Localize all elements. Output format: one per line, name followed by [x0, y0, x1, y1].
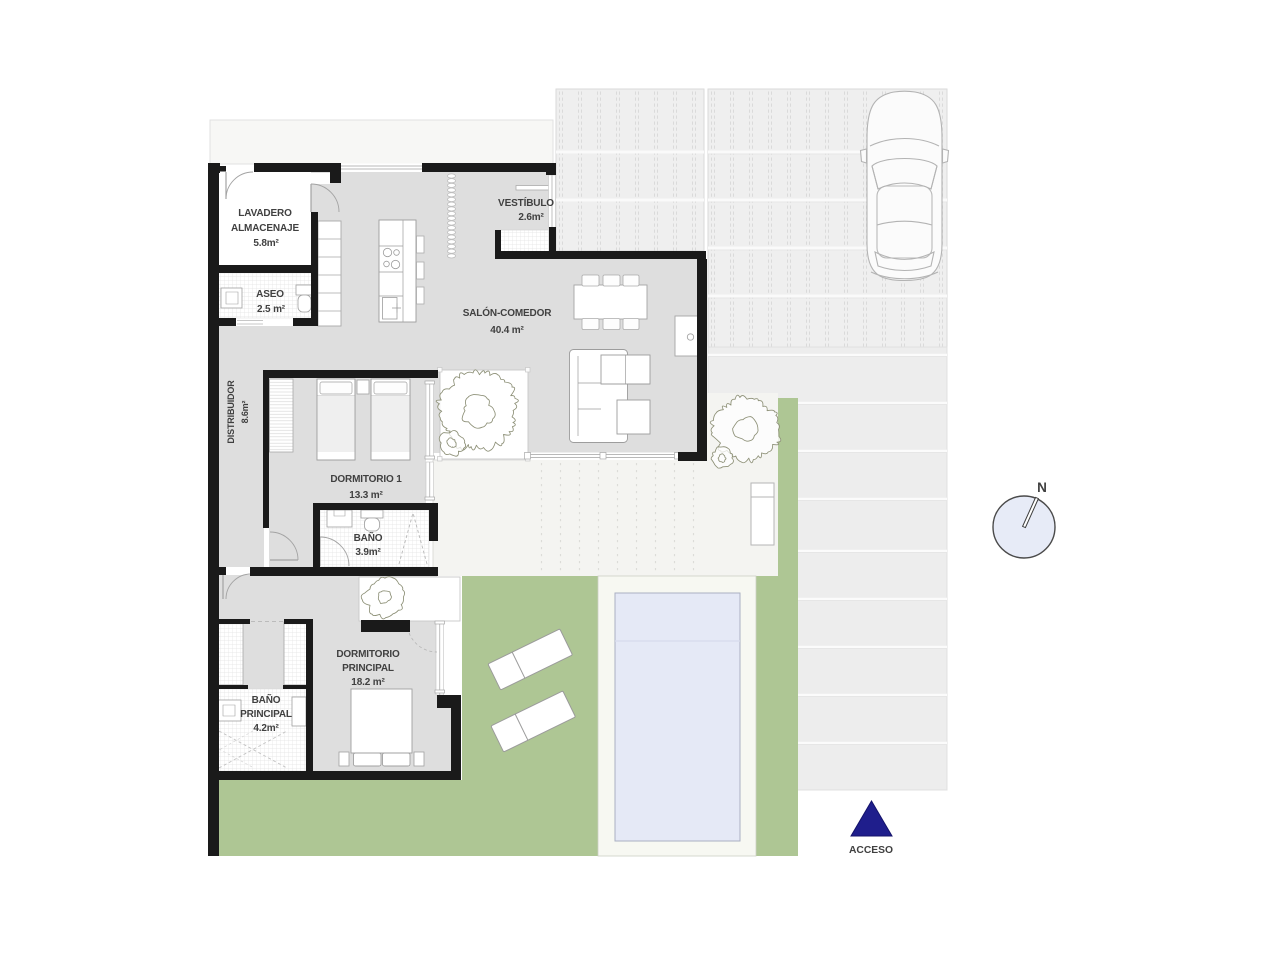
svg-text:3.9m²: 3.9m² — [355, 547, 381, 558]
svg-text:8.6m²: 8.6m² — [240, 400, 250, 423]
svg-text:DISTRIBUIDOR: DISTRIBUIDOR — [226, 380, 236, 444]
svg-text:LAVADERO: LAVADERO — [238, 208, 292, 219]
svg-text:BAÑO: BAÑO — [354, 531, 383, 544]
svg-text:ALMACENAJE: ALMACENAJE — [231, 223, 299, 234]
svg-text:2.5 m²: 2.5 m² — [257, 304, 286, 315]
svg-text:PRINCIPAL: PRINCIPAL — [342, 663, 394, 674]
svg-text:18.2 m²: 18.2 m² — [351, 677, 385, 688]
svg-text:DORMITORIO: DORMITORIO — [336, 649, 400, 660]
svg-text:4.2m²: 4.2m² — [253, 723, 279, 734]
svg-text:VESTÍBULO: VESTÍBULO — [498, 196, 554, 209]
svg-text:N: N — [1037, 480, 1047, 495]
svg-text:BAÑO: BAÑO — [252, 693, 281, 706]
svg-text:PRINCIPAL: PRINCIPAL — [240, 709, 292, 720]
svg-text:2.6m²: 2.6m² — [518, 212, 544, 223]
svg-text:ACCESO: ACCESO — [849, 845, 893, 856]
svg-text:SALÓN-COMEDOR: SALÓN-COMEDOR — [463, 306, 553, 319]
svg-text:13.3 m²: 13.3 m² — [349, 490, 383, 501]
svg-text:5.8m²: 5.8m² — [253, 238, 279, 249]
svg-text:ASEO: ASEO — [256, 289, 284, 300]
svg-text:40.4 m²: 40.4 m² — [490, 325, 524, 336]
svg-text:DORMITORIO 1: DORMITORIO 1 — [330, 474, 402, 485]
